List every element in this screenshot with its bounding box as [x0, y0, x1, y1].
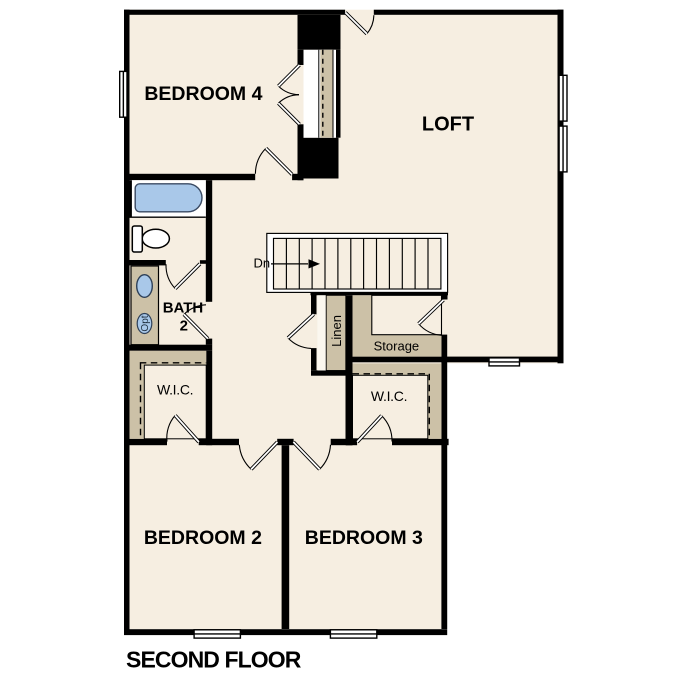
svg-text:SECOND FLOOR: SECOND FLOOR [126, 647, 302, 673]
svg-text:BEDROOM 2: BEDROOM 2 [144, 527, 262, 549]
svg-text:2: 2 [180, 317, 188, 334]
svg-text:Opt: Opt [140, 315, 151, 331]
svg-text:W.I.C.: W.I.C. [371, 388, 407, 404]
svg-text:BEDROOM 3: BEDROOM 3 [305, 527, 423, 549]
svg-text:LOFT: LOFT [422, 113, 474, 135]
svg-text:W.I.C.: W.I.C. [157, 381, 193, 397]
svg-text:BATH: BATH [163, 300, 204, 317]
svg-text:Storage: Storage [374, 339, 420, 354]
svg-text:Linen: Linen [329, 315, 344, 347]
svg-text:Dn: Dn [253, 256, 270, 271]
svg-text:BEDROOM 4: BEDROOM 4 [144, 83, 262, 105]
